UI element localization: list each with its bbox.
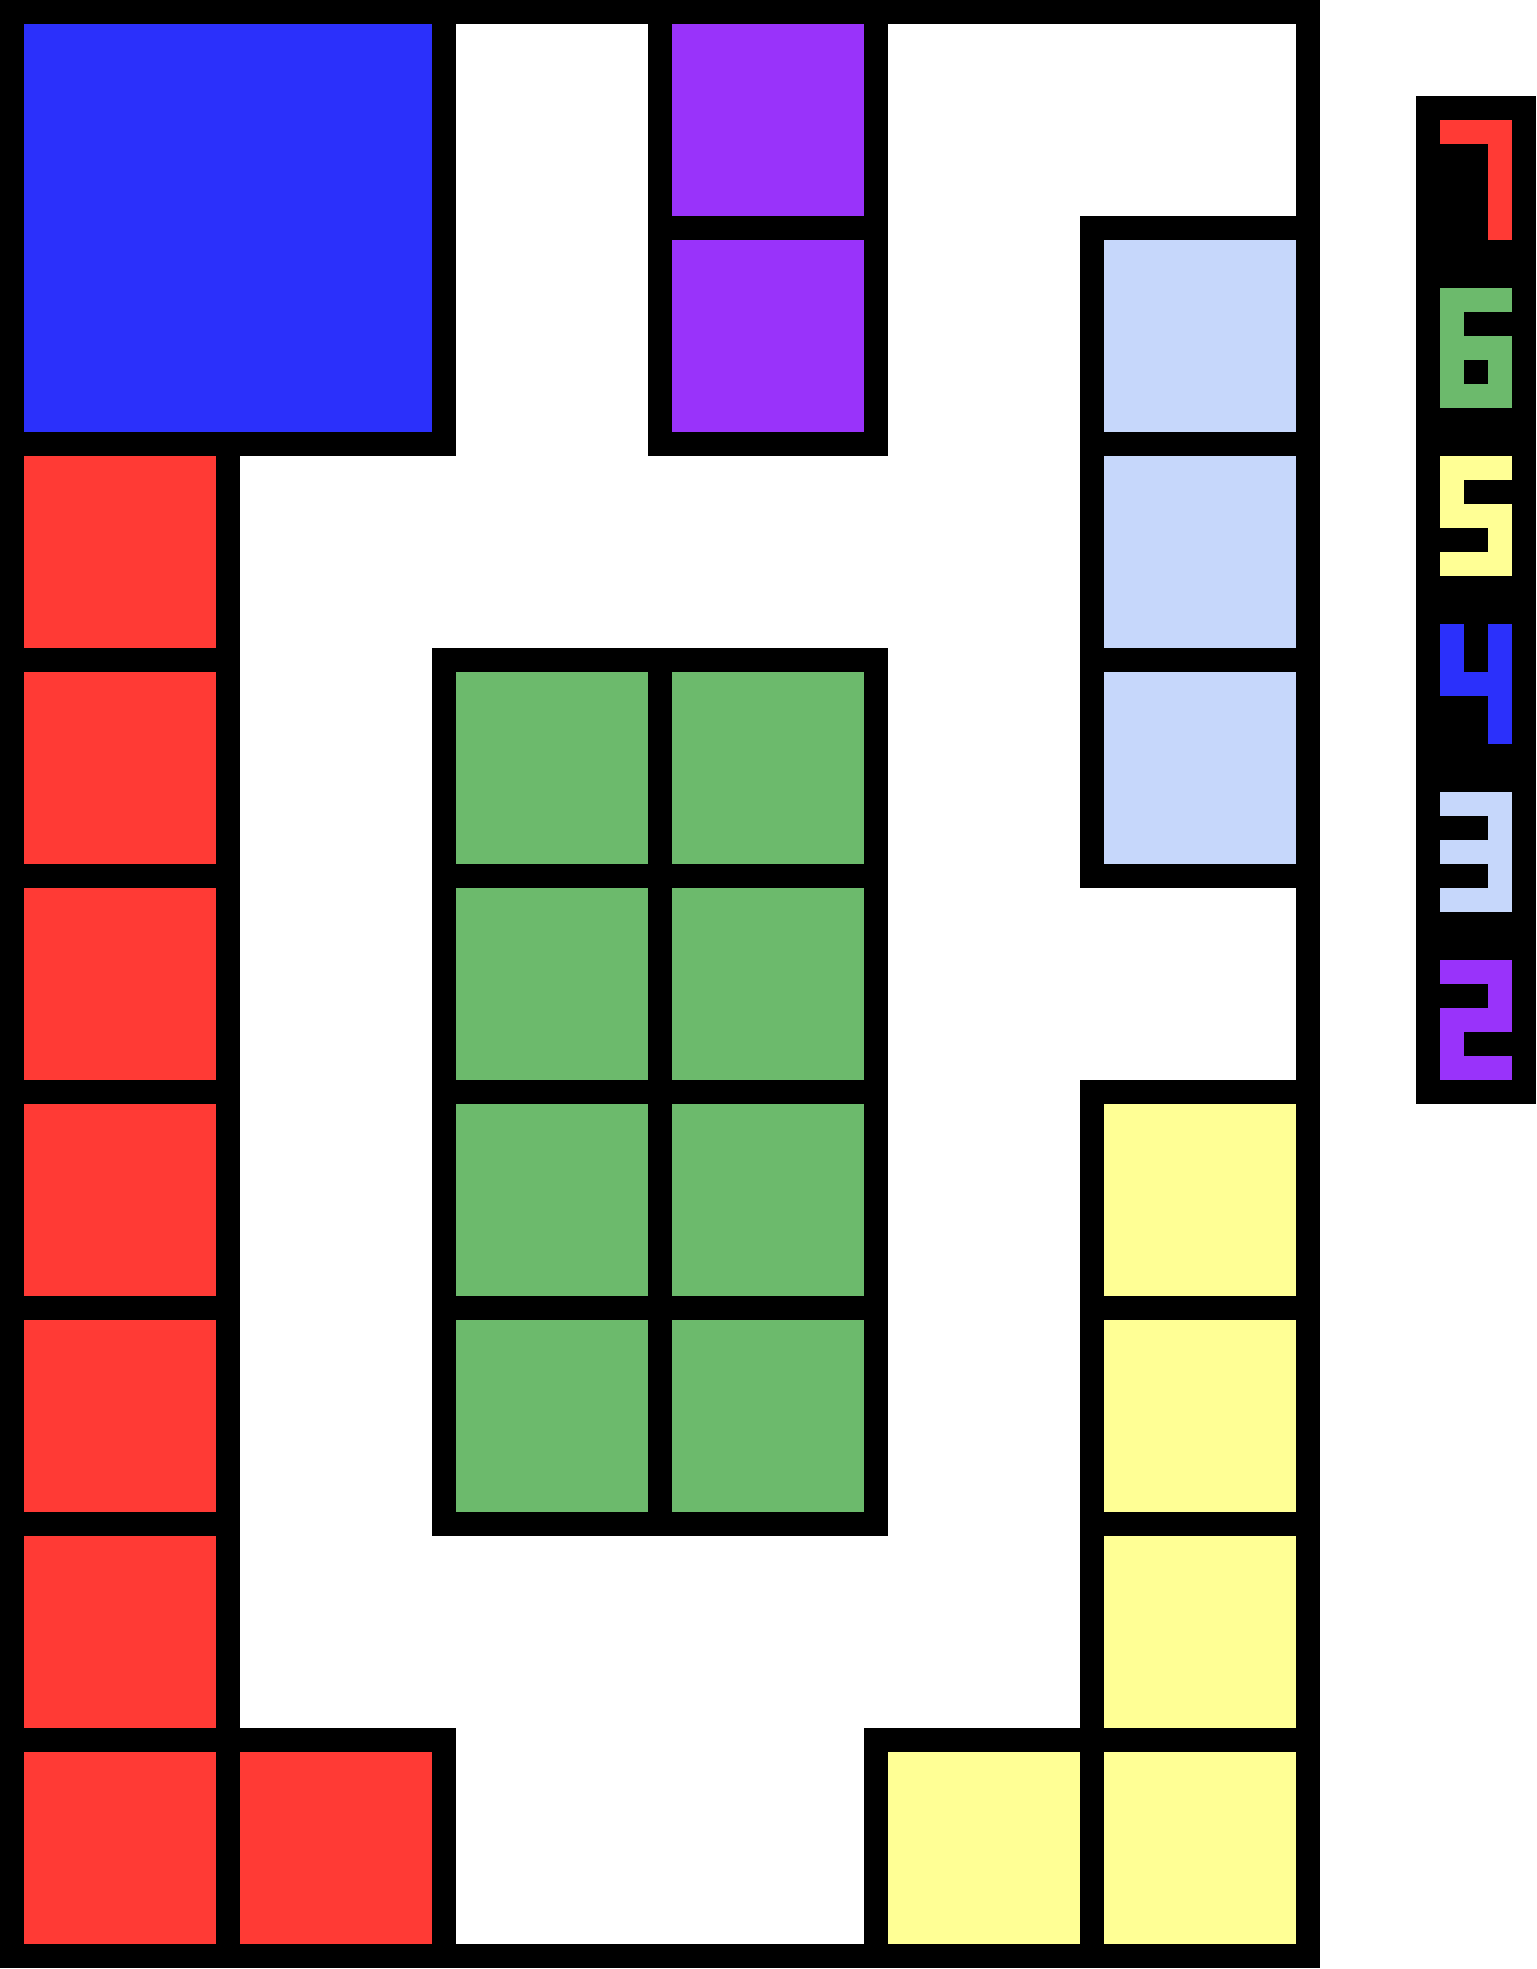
- legend-digit-5: [1440, 456, 1512, 576]
- tile-green[interactable]: [648, 864, 888, 1104]
- tile-red[interactable]: [0, 1728, 240, 1968]
- digit-6-glyph-icon: [1440, 288, 1512, 408]
- tile-red[interactable]: [0, 1512, 240, 1752]
- tile-green[interactable]: [432, 1080, 672, 1320]
- legend-digit-4: [1440, 624, 1512, 744]
- game-board: [0, 0, 1320, 1968]
- legend-digit-3: [1440, 792, 1512, 912]
- tile-lightblue[interactable]: [1080, 648, 1320, 888]
- tile-yellow[interactable]: [1080, 1512, 1320, 1752]
- tile-green[interactable]: [648, 1080, 888, 1320]
- legend-digit-6: [1440, 288, 1512, 408]
- tile-yellow[interactable]: [1080, 1296, 1320, 1536]
- tile-red[interactable]: [0, 864, 240, 1104]
- digit-7-glyph-icon: [1440, 120, 1512, 240]
- game-screen: [0, 0, 1537, 1969]
- tile-green[interactable]: [648, 648, 888, 888]
- tile-blue-big[interactable]: [0, 0, 456, 456]
- tile-red[interactable]: [216, 1728, 456, 1968]
- digit-3-glyph-icon: [1440, 792, 1512, 912]
- legend-digit-2: [1440, 960, 1512, 1080]
- tile-green[interactable]: [432, 648, 672, 888]
- tile-green[interactable]: [648, 1296, 888, 1536]
- tile-yellow[interactable]: [1080, 1080, 1320, 1320]
- tile-green[interactable]: [432, 864, 672, 1104]
- tile-purple[interactable]: [648, 216, 888, 456]
- tile-red[interactable]: [0, 1080, 240, 1320]
- tile-lightblue[interactable]: [1080, 216, 1320, 456]
- tile-yellow[interactable]: [864, 1728, 1104, 1968]
- legend-digit-7: [1440, 120, 1512, 240]
- digit-5-glyph-icon: [1440, 456, 1512, 576]
- digit-2-glyph-icon: [1440, 960, 1512, 1080]
- tile-red[interactable]: [0, 432, 240, 672]
- tile-red[interactable]: [0, 1296, 240, 1536]
- tile-purple[interactable]: [648, 0, 888, 240]
- digit-4-glyph-icon: [1440, 624, 1512, 744]
- tile-yellow[interactable]: [1080, 1728, 1320, 1968]
- tile-green[interactable]: [432, 1296, 672, 1536]
- tile-red[interactable]: [0, 648, 240, 888]
- legend-panel: [1416, 96, 1536, 1104]
- tile-lightblue[interactable]: [1080, 432, 1320, 672]
